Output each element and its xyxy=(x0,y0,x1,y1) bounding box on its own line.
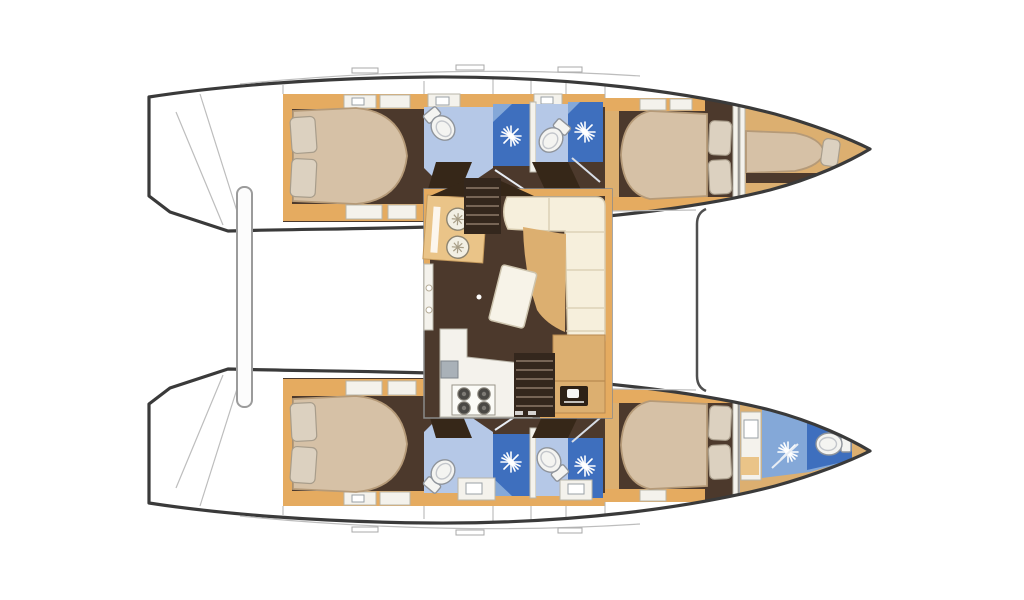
shelf xyxy=(346,205,382,219)
shelf xyxy=(670,99,692,110)
port-fwd-cabin xyxy=(605,98,740,211)
double-bed xyxy=(621,401,707,489)
coachroof-front-edge xyxy=(697,209,706,391)
stove-icon xyxy=(452,385,495,415)
shelf xyxy=(380,95,410,108)
double-bed xyxy=(621,111,707,199)
pillow-icon xyxy=(708,405,732,440)
rect-sink-icon xyxy=(466,483,482,494)
floorplan-canvas: Catamaran interior layout floor plan xyxy=(0,0,1024,600)
pillow-icon xyxy=(708,159,732,194)
shelf xyxy=(388,205,416,219)
saloon xyxy=(423,178,612,418)
deck-hatch xyxy=(456,65,484,70)
rect-sink-icon xyxy=(352,495,364,502)
wardrobe xyxy=(605,111,619,197)
pillow-icon xyxy=(290,116,317,154)
pillow-icon xyxy=(708,444,732,479)
pillow-icon xyxy=(708,120,732,155)
pillow-icon xyxy=(290,158,317,197)
companionway-stairs-starboard xyxy=(514,353,555,417)
shower-icon xyxy=(575,122,595,142)
pillow-icon xyxy=(290,446,317,484)
starboard-aft-cabin xyxy=(283,378,424,506)
deck-hatch xyxy=(558,67,582,72)
rect-sink-icon xyxy=(568,484,584,494)
shelf xyxy=(388,381,416,395)
round-sink-icon xyxy=(446,235,469,258)
deck-hatch xyxy=(456,530,484,535)
rect-sink-icon xyxy=(541,97,553,104)
fitting-dot xyxy=(426,285,432,291)
catamaran-floorplan: Catamaran interior layout floor plan xyxy=(0,0,1024,600)
starboard-fwd-cabin xyxy=(605,389,740,502)
deck-hatch xyxy=(558,528,582,533)
port-aft-cabin xyxy=(283,94,424,222)
sink-icon xyxy=(441,361,458,378)
pillow-icon xyxy=(290,402,317,441)
rect-sink-icon xyxy=(744,420,758,438)
shower-icon xyxy=(501,126,521,146)
aft-crossbeam-bar xyxy=(237,187,252,407)
shelf xyxy=(640,99,666,110)
rect-sink-icon xyxy=(436,97,449,105)
fitting-dot xyxy=(426,307,432,313)
shower-icon xyxy=(575,456,595,476)
nav-cabinet xyxy=(553,335,605,413)
shelf xyxy=(346,381,382,395)
appliance-icon xyxy=(560,386,588,406)
deck-hatch xyxy=(352,527,378,532)
shower-icon xyxy=(501,452,521,472)
pillow-icon xyxy=(820,138,841,167)
shelf xyxy=(640,490,666,501)
rect-sink-icon xyxy=(352,98,364,105)
deck-hatch xyxy=(352,68,378,73)
fitting-dot xyxy=(477,295,482,300)
shelf xyxy=(380,492,410,505)
